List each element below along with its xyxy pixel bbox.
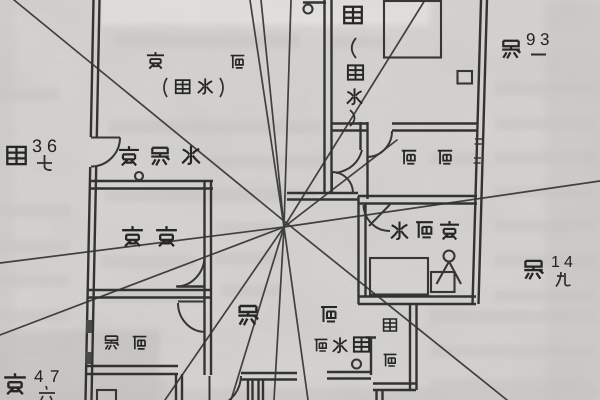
svg-text:3: 3	[32, 136, 42, 156]
svg-text:7: 7	[50, 367, 59, 386]
svg-text:4: 4	[34, 367, 43, 386]
svg-text:4: 4	[564, 254, 573, 271]
svg-text:9: 9	[526, 30, 535, 49]
svg-text:6: 6	[47, 136, 57, 156]
svg-text:1: 1	[551, 254, 560, 271]
svg-text:3: 3	[540, 30, 549, 49]
